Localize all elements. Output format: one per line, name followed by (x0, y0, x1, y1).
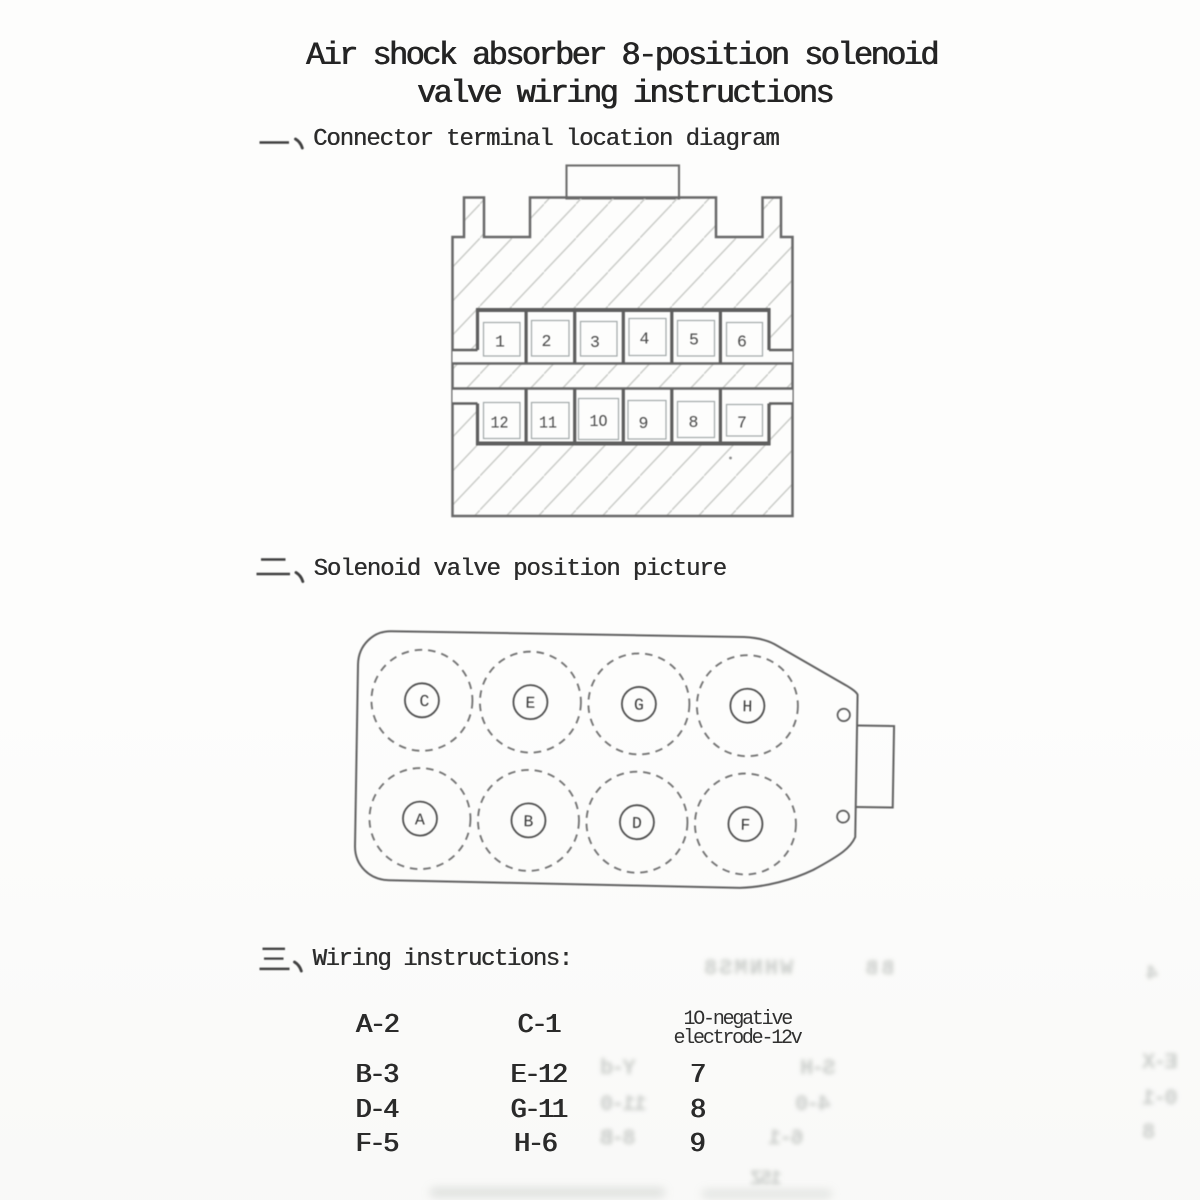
svg-text:6: 6 (737, 333, 747, 352)
svg-text:12: 12 (491, 414, 509, 433)
svg-text:3: 3 (590, 333, 600, 352)
svg-text:11: 11 (539, 414, 557, 433)
svg-text:1O: 1O (590, 412, 608, 431)
svg-text:1: 1 (495, 333, 505, 352)
svg-text:8: 8 (689, 413, 699, 432)
svg-text:5: 5 (689, 331, 699, 350)
svg-text:9: 9 (639, 414, 649, 433)
svg-text:7: 7 (737, 414, 747, 433)
svg-text:2: 2 (542, 332, 552, 351)
svg-text:4: 4 (640, 330, 650, 349)
